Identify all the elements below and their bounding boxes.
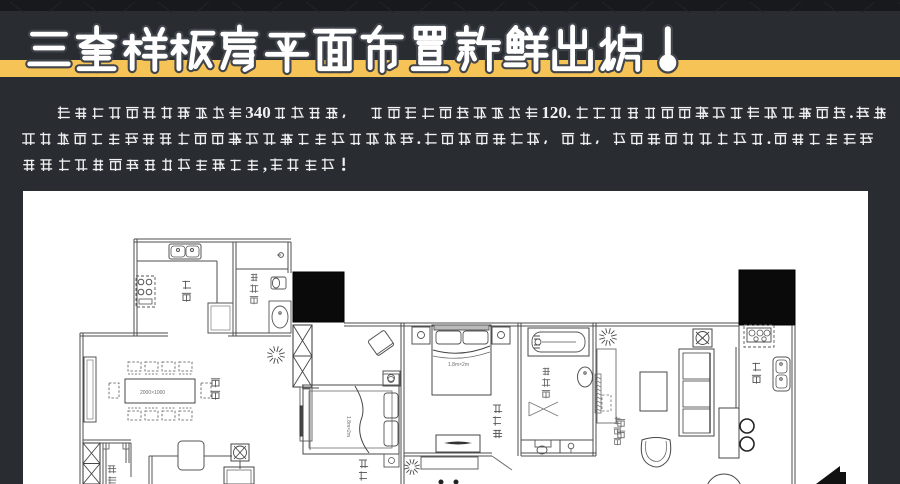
svg-text:2000×1000: 2000×1000 — [140, 390, 165, 396]
svg-text:.: . — [849, 103, 853, 122]
svg-text:1.8m×2m: 1.8m×2m — [448, 362, 469, 368]
svg-text:.: . — [767, 129, 771, 148]
svg-text:,: , — [263, 155, 267, 174]
svg-text:340: 340 — [245, 103, 271, 122]
svg-text:120.: 120. — [541, 103, 571, 122]
svg-text:1.8m×2m: 1.8m×2m — [345, 416, 351, 437]
svg-text:.: . — [417, 129, 421, 148]
